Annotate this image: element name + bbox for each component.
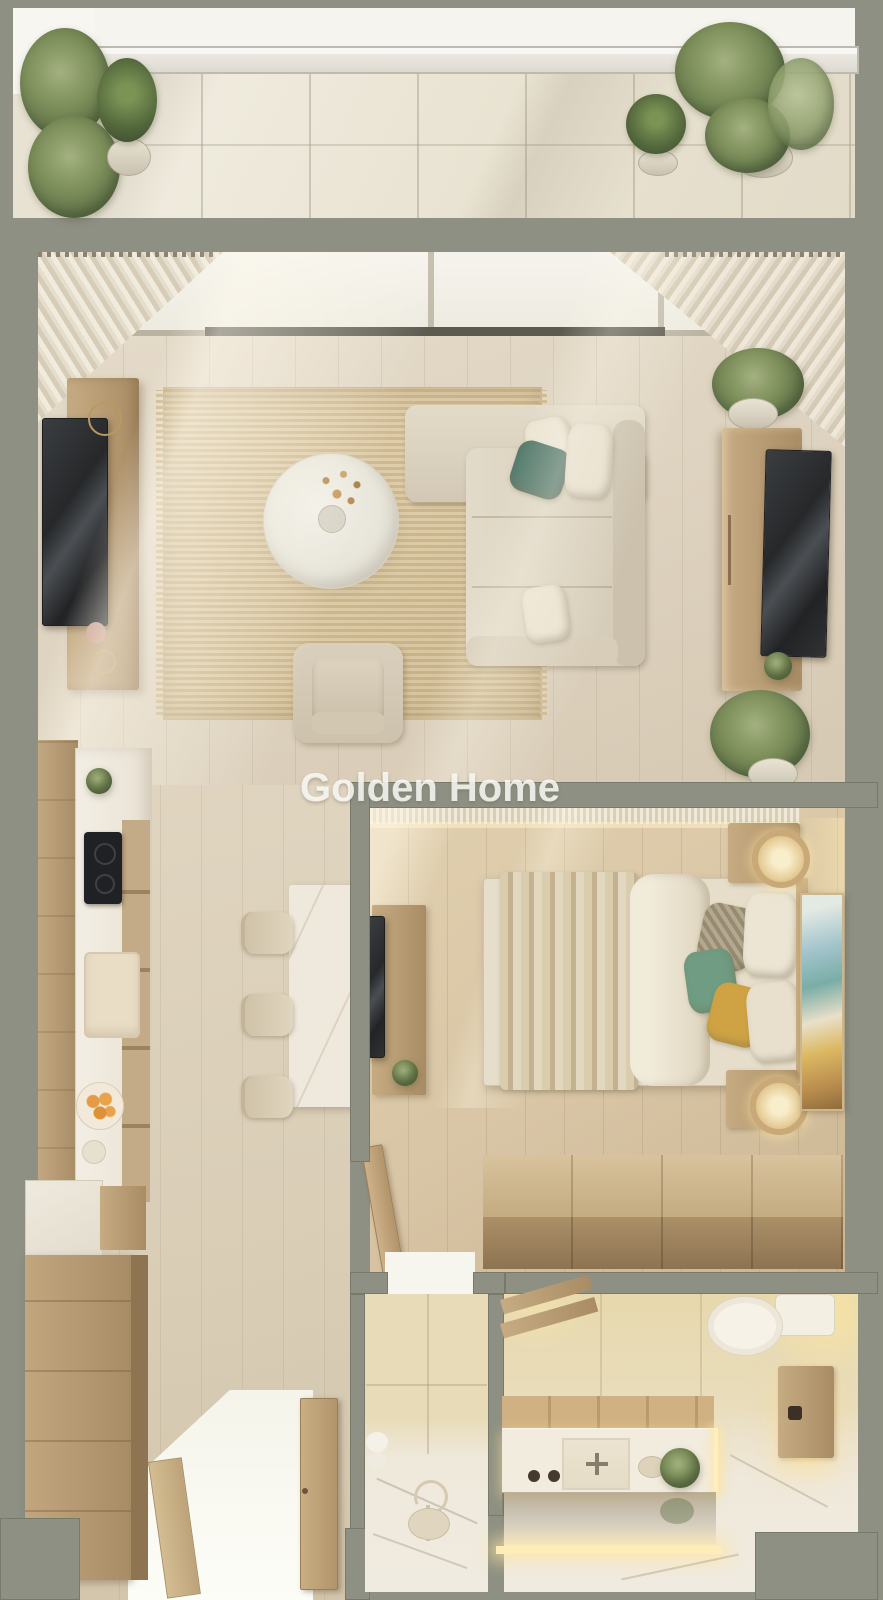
shower-tile-seam: [366, 1384, 487, 1386]
pillow-white: [742, 892, 800, 979]
storage-chest-front: [483, 1217, 843, 1269]
decor-vase: [86, 622, 106, 644]
dining-table: [289, 885, 353, 1107]
plant-pot: [107, 138, 151, 176]
rattan-pendant-lamp: [752, 830, 810, 888]
kitchen-sink: [84, 952, 140, 1038]
sofa-backrest: [613, 420, 645, 666]
rug-fringe: [156, 390, 163, 715]
bath-tile-seam: [600, 1294, 602, 1402]
plant-pot: [728, 398, 778, 430]
armchair-seat-edge: [312, 712, 384, 734]
sofa-cushion-seam: [472, 516, 612, 518]
bath-cabinet: [778, 1366, 834, 1458]
vanity-wood-platform: [502, 1396, 714, 1428]
wall-bedroom-hall: [350, 782, 370, 1162]
decor-ring: [92, 650, 116, 674]
bed-blanket: [500, 872, 638, 1090]
flower-vase: [318, 505, 346, 533]
faucet-knob: [528, 1470, 540, 1482]
hall-wood-shelf: [100, 1186, 146, 1250]
cooktop-burner: [94, 843, 116, 865]
throw-pillow-white: [520, 583, 571, 645]
shelf-plant: [764, 652, 792, 680]
bath-tile-seam: [700, 1294, 702, 1402]
curtain-rail: [38, 252, 218, 257]
wall-tv: [760, 449, 831, 658]
cabinet-handle-hole: [788, 1406, 802, 1420]
sideboard-handle: [728, 515, 731, 585]
floorplan-render: Golden Home: [0, 0, 883, 1600]
counter-plant: [86, 768, 112, 794]
door-handle: [302, 1488, 308, 1494]
dining-stool: [241, 1076, 293, 1118]
faucet-knob: [548, 1470, 560, 1482]
throw-pillow-white: [563, 422, 614, 499]
toilet-tank: [775, 1294, 835, 1336]
entry-light-spill: [385, 1252, 475, 1294]
reflected-plant: [660, 1498, 694, 1524]
vanity-plant: [660, 1448, 700, 1488]
vanity-led-edge: [714, 1428, 718, 1492]
desk-plant: [392, 1060, 418, 1086]
wall-corner-block: [0, 1518, 80, 1600]
bedroom-tv: [368, 916, 385, 1058]
fruit-bowl: [76, 1082, 124, 1130]
toilet-paper-holder: [366, 1432, 388, 1452]
glass-door-track: [205, 327, 665, 336]
abstract-wall-art: [800, 893, 844, 1111]
tall-dresser-side: [131, 1255, 148, 1580]
wall-bathroom-top: [473, 1272, 505, 1294]
dining-stool: [241, 994, 293, 1036]
agave-plant: [97, 58, 157, 142]
wall-tv: [42, 418, 108, 626]
grass-plant: [768, 58, 834, 150]
cooktop-burner: [95, 874, 115, 894]
toilet-bowl: [707, 1296, 783, 1356]
round-shrub-plant: [626, 94, 686, 154]
hall-door: [300, 1398, 338, 1590]
marble-shelf: [25, 1180, 103, 1256]
wall-bathroom-notch: [755, 1532, 878, 1600]
shower-stool-seat: [408, 1508, 450, 1540]
dried-flowers: [316, 468, 366, 510]
decor-wire-bowl: [88, 402, 122, 436]
dining-stool: [241, 912, 293, 954]
watermark-text: Golden Home: [300, 766, 560, 811]
faucet: [595, 1453, 599, 1475]
kitchen-cabinet-run: [38, 740, 78, 1205]
shower-tile-seam: [427, 1294, 429, 1454]
small-plate: [82, 1140, 106, 1164]
curtain-rail: [665, 252, 845, 257]
glass-door-mullion: [428, 252, 434, 336]
led-strip: [496, 1546, 722, 1554]
storage-chest-top: [483, 1155, 843, 1217]
wall-bathroom-top: [350, 1272, 388, 1294]
